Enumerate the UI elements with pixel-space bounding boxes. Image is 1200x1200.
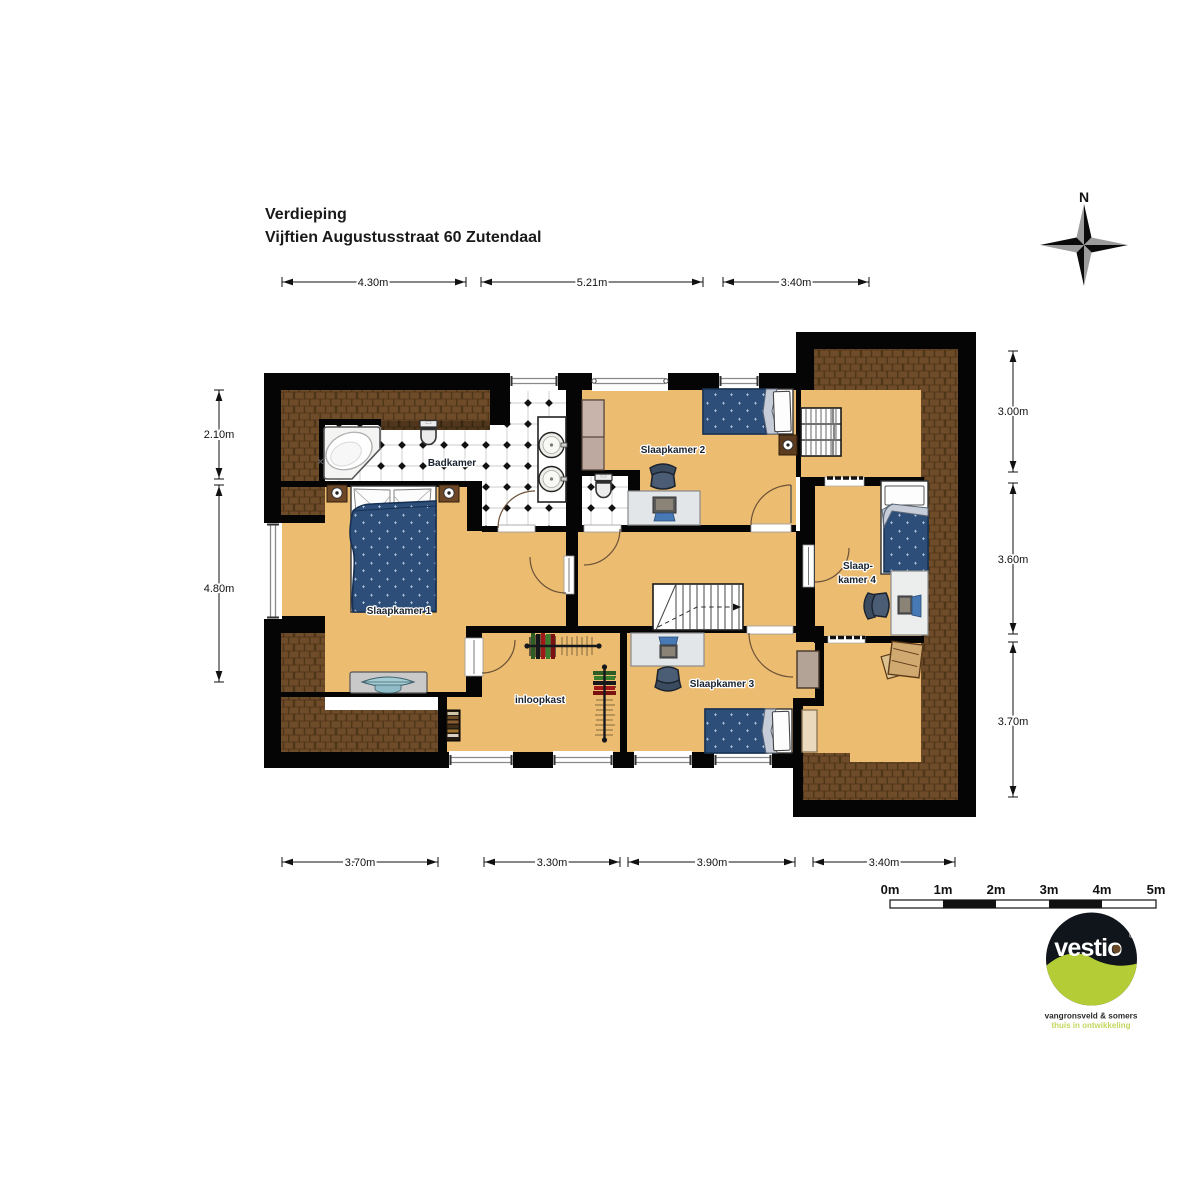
svg-text:vangronsveld & somers: vangronsveld & somers [1045, 1012, 1138, 1021]
svg-text:Slaapkamer 2: Slaapkamer 2 [641, 445, 706, 456]
svg-text:3.40m: 3.40m [781, 277, 812, 289]
svg-text:inloopkast: inloopkast [515, 695, 566, 706]
svg-text:N: N [1079, 189, 1089, 205]
svg-text:1m: 1m [934, 882, 953, 897]
svg-text:0m: 0m [881, 882, 900, 897]
svg-text:4.30m: 4.30m [358, 277, 389, 289]
svg-text:Slaap-: Slaap- [843, 561, 873, 572]
svg-text:vestio: vestio [1054, 934, 1122, 962]
svg-text:5.21m: 5.21m [577, 277, 608, 289]
svg-text:Verdieping: Verdieping [265, 206, 347, 223]
svg-text:3.70m: 3.70m [345, 857, 376, 869]
svg-text:Badkamer: Badkamer [428, 458, 476, 469]
svg-text:4m: 4m [1093, 882, 1112, 897]
svg-text:3.90m: 3.90m [697, 857, 728, 869]
svg-text:3m: 3m [1040, 882, 1059, 897]
svg-text:4.80m: 4.80m [204, 583, 235, 595]
svg-text:kamer 4: kamer 4 [838, 575, 876, 586]
svg-text:®: ® [1129, 931, 1135, 940]
svg-text:5m: 5m [1147, 882, 1166, 897]
svg-text:3.30m: 3.30m [537, 857, 568, 869]
svg-text:2.10m: 2.10m [204, 429, 235, 441]
svg-text:3.40m: 3.40m [869, 857, 900, 869]
svg-text:Slaapkamer 3: Slaapkamer 3 [690, 679, 755, 690]
svg-text:3.60m: 3.60m [998, 554, 1029, 566]
svg-text:3.00m: 3.00m [998, 406, 1029, 418]
svg-text:Vijftien Augustusstraat 60 Zut: Vijftien Augustusstraat 60 Zutendaal [265, 229, 542, 246]
svg-text:2m: 2m [987, 882, 1006, 897]
svg-text:thuis in ontwikkeling: thuis in ontwikkeling [1051, 1021, 1130, 1030]
svg-text:3.70m: 3.70m [998, 716, 1029, 728]
svg-text:Slaapkamer 1: Slaapkamer 1 [367, 606, 432, 617]
